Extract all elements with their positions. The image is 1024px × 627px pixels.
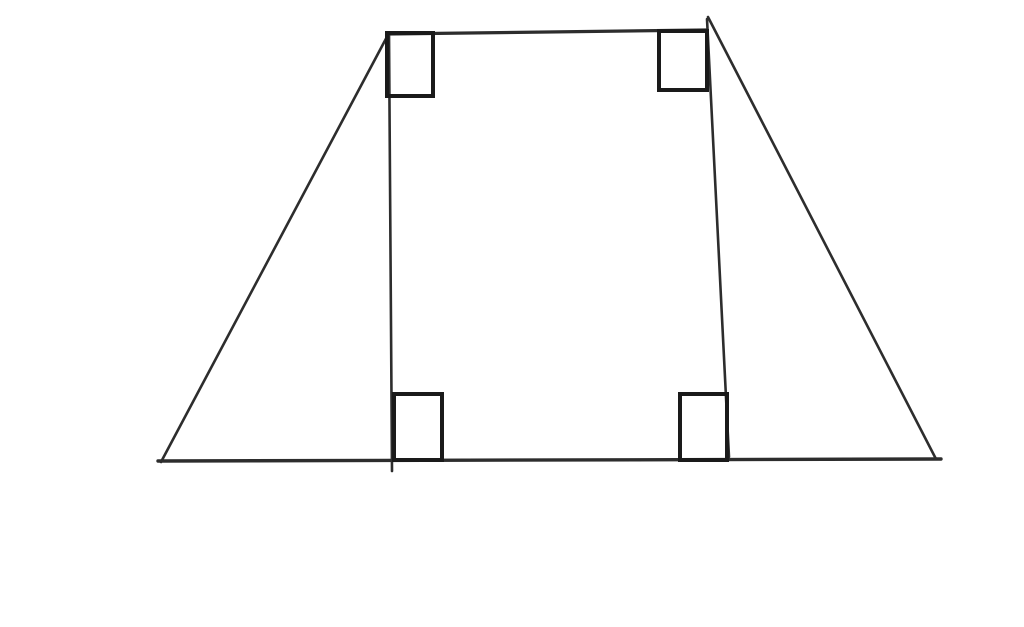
trapezoid-right-leg-line [708,17,936,459]
trapezoid-with-altitudes-figure [0,0,1024,627]
right-altitude-line [707,19,729,457]
left-altitude-line [389,33,392,471]
trapezoid-left-leg-line [161,33,389,462]
top-left-right-angle-marker [387,33,433,96]
trapezoid-base-line [158,459,941,461]
bottom-right-right-angle-marker [680,394,727,460]
top-right-right-angle-marker [659,31,707,90]
bottom-left-right-angle-marker [394,394,442,460]
diagram-canvas [0,0,1024,627]
